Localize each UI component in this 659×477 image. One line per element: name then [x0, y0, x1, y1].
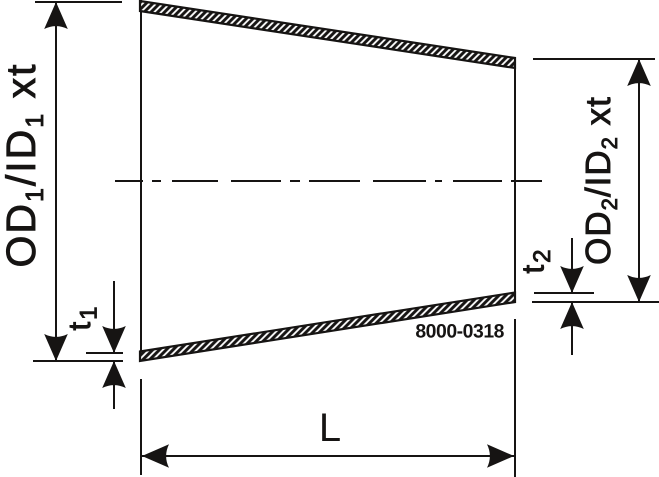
svg-text:8000-0318: 8000-0318	[415, 321, 504, 343]
svg-text:OD1/ID1 xt: OD1/ID1 xt	[0, 62, 49, 267]
svg-text:t1: t1	[62, 305, 103, 331]
svg-text:L: L	[319, 406, 341, 450]
svg-text:t2: t2	[516, 248, 557, 274]
svg-text:OD2/ID2 xt: OD2/ID2 xt	[579, 96, 622, 265]
